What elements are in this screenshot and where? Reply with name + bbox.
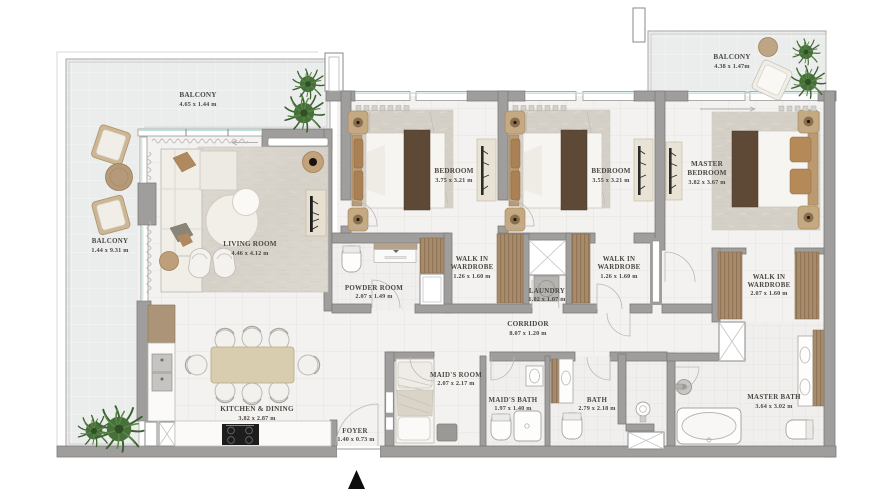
svg-text:3.82 x 3.67 m: 3.82 x 3.67 m: [688, 179, 726, 186]
svg-text:3.75 x 3.21 m: 3.75 x 3.21 m: [435, 177, 473, 184]
svg-text:BALCONY: BALCONY: [179, 91, 217, 99]
svg-text:MASTER: MASTER: [691, 160, 724, 168]
svg-text:1.40 x 0.73 m: 1.40 x 0.73 m: [337, 436, 375, 443]
svg-text:1.26 x 1.60 m: 1.26 x 1.60 m: [453, 273, 491, 280]
svg-text:3.64 x 3.02 m: 3.64 x 3.02 m: [755, 403, 793, 410]
svg-text:1.26 x 1.60 m: 1.26 x 1.60 m: [600, 273, 638, 280]
svg-text:BALCONY: BALCONY: [713, 53, 751, 61]
svg-text:WARDROBE: WARDROBE: [451, 264, 494, 271]
svg-text:MAID'S BATH: MAID'S BATH: [489, 397, 538, 404]
svg-text:WALK IN: WALK IN: [753, 274, 786, 281]
svg-text:2.79 x 2.18 m: 2.79 x 2.18 m: [578, 405, 616, 412]
svg-text:WARDROBE: WARDROBE: [748, 282, 791, 289]
svg-text:4.38 x 1.47m: 4.38 x 1.47m: [714, 63, 750, 70]
svg-text:WALK IN: WALK IN: [456, 256, 489, 263]
svg-text:LIVING ROOM: LIVING ROOM: [223, 240, 277, 248]
svg-text:POWDER ROOM: POWDER ROOM: [345, 285, 403, 292]
svg-text:MASTER BATH: MASTER BATH: [747, 394, 801, 401]
svg-text:BEDROOM: BEDROOM: [687, 169, 726, 177]
svg-text:2.07 x 1.49 m: 2.07 x 1.49 m: [355, 293, 393, 300]
svg-text:3.55 x 3.21 m: 3.55 x 3.21 m: [592, 177, 630, 184]
svg-text:2.07 x 1.60 m: 2.07 x 1.60 m: [750, 290, 788, 297]
svg-text:MAID'S ROOM: MAID'S ROOM: [430, 372, 482, 379]
svg-text:8.07 x 1.20 m: 8.07 x 1.20 m: [509, 330, 547, 337]
svg-text:LAUNDRY: LAUNDRY: [529, 288, 565, 295]
svg-text:BEDROOM: BEDROOM: [591, 167, 630, 175]
svg-text:4.65 x 1.44 m: 4.65 x 1.44 m: [179, 101, 217, 108]
svg-text:WARDROBE: WARDROBE: [598, 264, 641, 271]
svg-text:1.97 x 1.40 m: 1.97 x 1.40 m: [494, 405, 532, 412]
svg-text:4.46 x 4.12 m: 4.46 x 4.12 m: [231, 250, 269, 257]
svg-text:BEDROOM: BEDROOM: [434, 167, 473, 175]
svg-text:KITCHEN & DINING: KITCHEN & DINING: [220, 405, 294, 413]
svg-text:BALCONY: BALCONY: [92, 238, 129, 245]
svg-text:FOYER: FOYER: [342, 428, 368, 435]
svg-text:BATH: BATH: [587, 397, 608, 404]
svg-text:WALK IN: WALK IN: [603, 256, 636, 263]
svg-text:2.07 x 2.17 m: 2.07 x 2.17 m: [437, 380, 475, 387]
svg-text:1.02 x 1.07 m: 1.02 x 1.07 m: [528, 296, 566, 303]
svg-text:CORRIDOR: CORRIDOR: [507, 320, 549, 328]
svg-text:1.44 x 9.31 m: 1.44 x 9.31 m: [91, 247, 129, 254]
svg-text:3.82 x 2.87 m: 3.82 x 2.87 m: [238, 415, 276, 422]
